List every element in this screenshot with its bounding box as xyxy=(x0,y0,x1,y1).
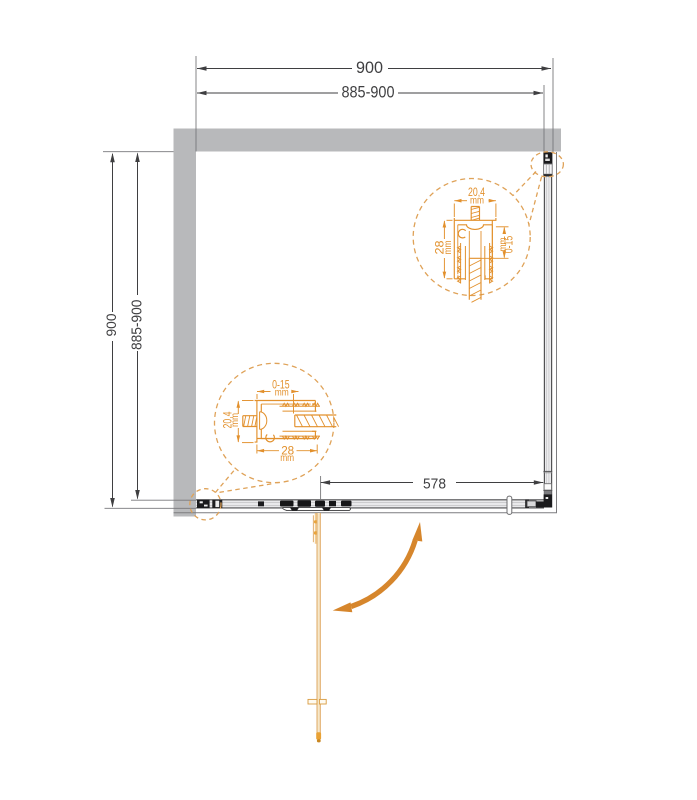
svg-text:mm: mm xyxy=(497,237,509,251)
svg-text:mm: mm xyxy=(470,194,484,206)
svg-text:885-900: 885-900 xyxy=(129,300,146,351)
svg-text:mm: mm xyxy=(275,387,289,399)
svg-text:mm: mm xyxy=(229,413,241,427)
svg-text:885-900: 885-900 xyxy=(342,84,395,102)
svg-text:900: 900 xyxy=(356,59,383,77)
svg-text:mm: mm xyxy=(280,452,294,464)
svg-text:900: 900 xyxy=(103,313,119,336)
svg-text:578: 578 xyxy=(423,476,446,492)
svg-text:mm: mm xyxy=(442,240,454,254)
